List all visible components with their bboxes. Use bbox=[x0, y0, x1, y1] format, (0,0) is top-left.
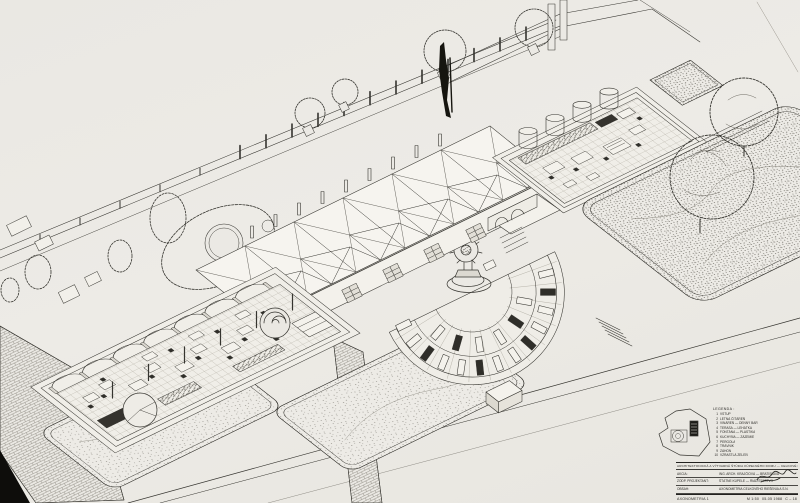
garden-bed bbox=[650, 60, 723, 105]
drawing-scale: M 1:50 bbox=[747, 497, 759, 501]
access-road bbox=[438, 0, 700, 82]
title-block-bottom-row: AXONOMETRIA 1 M 1:50 05-05 1988 C – 18 bbox=[676, 494, 798, 503]
legend: LEGENDA : 1VSTUP 2LETNÁ ČITÁREŇ 3VINÁREŇ… bbox=[713, 407, 799, 458]
site-key-map bbox=[650, 406, 712, 462]
tree-canopies-left bbox=[1, 193, 186, 302]
title-block-row: OBSAH: AXONOMETRIA CELKOVÉHO RIEŠENIA A … bbox=[676, 486, 798, 494]
planter-trees bbox=[295, 9, 553, 137]
drawing-name: AXONOMETRIA 1 bbox=[677, 497, 744, 501]
garden-steps bbox=[596, 318, 632, 346]
dark-cypress-tree bbox=[439, 42, 451, 118]
small-outbuildings bbox=[6, 216, 101, 304]
sheet-number: C – 18 bbox=[785, 497, 797, 501]
scanned-drawing-page: LEGENDA : 1VSTUP 2LETNÁ ČITÁREŇ 3VINÁREŇ… bbox=[0, 0, 800, 503]
legend-item: 10VZRASTLÁ ZELEŇ bbox=[713, 453, 799, 458]
drawing-date: 05-05 1988 bbox=[762, 497, 782, 501]
signature-scribble bbox=[755, 468, 797, 486]
